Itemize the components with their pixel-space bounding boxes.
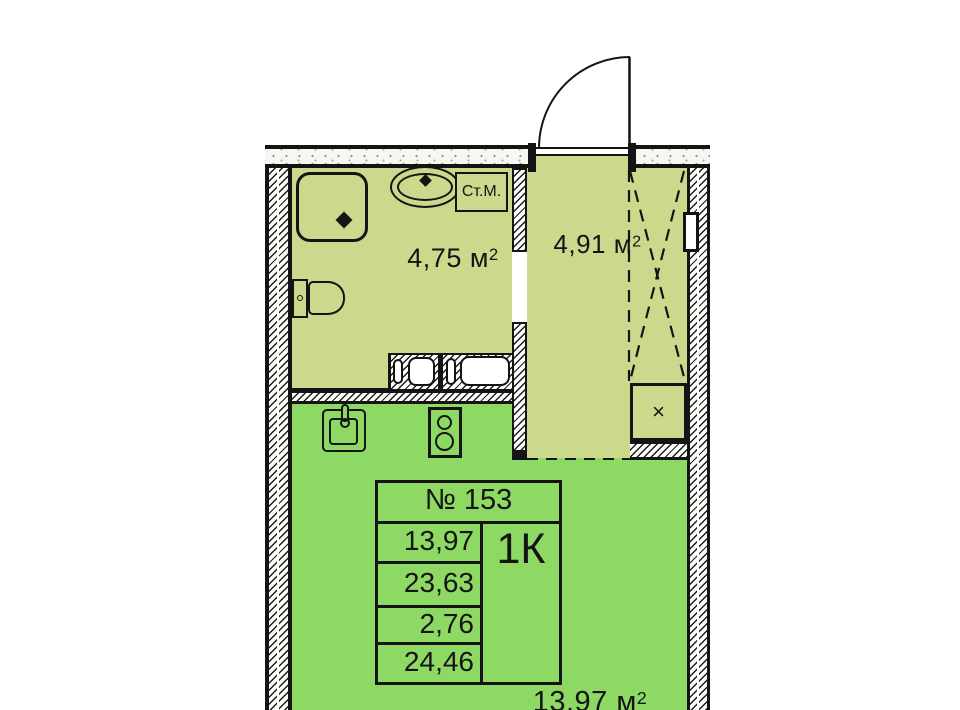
door-threshold [536, 147, 628, 156]
left-wall-layer-gap [277, 168, 279, 710]
shower-tray [296, 172, 368, 242]
wall-bathroom-hall-lower [512, 322, 527, 452]
top-wall-bathroom [265, 145, 532, 168]
apartment-info-table: № 153 13,97 23,63 2,76 24,46 1К [375, 480, 562, 685]
area-row-living: 13,97 [378, 524, 480, 564]
door-panel-leaf-2 [460, 356, 510, 386]
area-values-column: 13,97 23,63 2,76 24,46 [378, 524, 483, 682]
wall-bathroom-hall-upper [512, 168, 527, 252]
door-panel-leaf-1 [408, 357, 435, 386]
door-jamb-left [528, 143, 536, 172]
toilet-bowl [308, 281, 345, 315]
door-panel-handle-2 [446, 358, 456, 385]
area-row-balcony: 2,76 [378, 608, 480, 645]
vent-shaft-label: × [652, 399, 665, 424]
top-wall-entry [636, 145, 710, 168]
stove-burner-small [437, 415, 452, 430]
electric-panel [683, 212, 699, 252]
faucet-head [340, 418, 350, 428]
entrance-door-arc [539, 57, 630, 148]
toilet-flush-button [297, 295, 303, 301]
vent-shaft-wall [630, 441, 687, 460]
door-panel-handle-1 [393, 359, 403, 384]
vent-shaft-box: × [630, 383, 687, 441]
left-wall [265, 168, 292, 710]
hall-area-label: 4,91 м2 [540, 229, 655, 260]
apartment-type: 1К [483, 524, 559, 682]
stove-burner-large [435, 432, 454, 451]
wall-end-cap [512, 452, 527, 460]
door-jamb-right [628, 143, 636, 172]
living-area-label: 13,97 м2 [515, 686, 665, 710]
area-row-overall: 24,46 [378, 645, 480, 682]
area-row-total: 23,63 [378, 564, 480, 608]
door-panel-divider [438, 353, 443, 391]
washing-machine-box: Ст.М. [455, 172, 508, 212]
washing-machine-label: Ст.М. [462, 183, 501, 200]
apartment-number: № 153 [378, 483, 559, 524]
bathroom-area-label: 4,75 м2 [393, 243, 513, 274]
floor-plan: Ст.М. × 4,75 м2 4,91 м2 13,97 м2 № 153 [0, 0, 960, 710]
